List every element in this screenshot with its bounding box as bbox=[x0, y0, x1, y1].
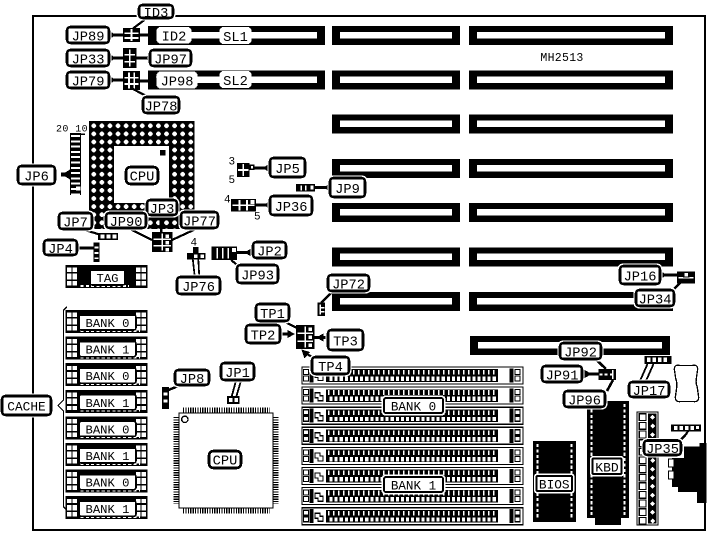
svg-text:JP7: JP7 bbox=[63, 216, 88, 231]
svg-text:TP1: TP1 bbox=[260, 308, 285, 323]
svg-text:CACHE: CACHE bbox=[7, 400, 46, 415]
svg-text:JP9: JP9 bbox=[335, 183, 360, 198]
svg-text:JP6: JP6 bbox=[24, 170, 49, 185]
svg-text:BANK 0: BANK 0 bbox=[86, 423, 130, 437]
svg-text:JP91: JP91 bbox=[546, 369, 579, 384]
svg-text:SL1: SL1 bbox=[223, 31, 248, 46]
svg-text:TP2: TP2 bbox=[251, 329, 276, 344]
svg-text:KBD: KBD bbox=[595, 460, 619, 475]
svg-text:JP17: JP17 bbox=[633, 385, 666, 400]
svg-text:CPU: CPU bbox=[213, 455, 238, 470]
svg-text:ID2: ID2 bbox=[162, 31, 187, 46]
svg-text:JP16: JP16 bbox=[624, 270, 657, 285]
svg-text:MH2513: MH2513 bbox=[540, 52, 583, 65]
svg-text:BIOS: BIOS bbox=[539, 478, 570, 493]
svg-text:4: 4 bbox=[224, 195, 231, 207]
svg-text:JP90: JP90 bbox=[110, 216, 143, 231]
svg-text:BANK 1: BANK 1 bbox=[86, 503, 130, 517]
svg-text:JP76: JP76 bbox=[182, 281, 215, 296]
svg-text:JP2: JP2 bbox=[257, 245, 282, 260]
svg-text:TP4: TP4 bbox=[318, 361, 343, 376]
svg-text:BANK 1: BANK 1 bbox=[86, 344, 130, 358]
svg-text:JP78: JP78 bbox=[145, 100, 178, 115]
svg-text:JP72: JP72 bbox=[332, 278, 365, 293]
svg-text:JP3: JP3 bbox=[150, 203, 175, 218]
svg-text:BANK 0: BANK 0 bbox=[86, 370, 130, 384]
svg-text:JP1: JP1 bbox=[225, 367, 250, 382]
svg-text:ID3: ID3 bbox=[144, 7, 169, 22]
svg-text:SL2: SL2 bbox=[223, 75, 248, 90]
svg-text:JP34: JP34 bbox=[639, 293, 672, 308]
svg-text:5: 5 bbox=[229, 175, 236, 187]
svg-text:JP98: JP98 bbox=[161, 75, 194, 90]
svg-text:JP5: JP5 bbox=[275, 163, 300, 178]
svg-text:JP36: JP36 bbox=[275, 201, 308, 216]
svg-text:JP97: JP97 bbox=[154, 53, 187, 68]
svg-text:BANK 0: BANK 0 bbox=[391, 401, 436, 415]
svg-text:JP33: JP33 bbox=[72, 53, 105, 68]
svg-text:CPU: CPU bbox=[130, 171, 155, 186]
svg-text:JP96: JP96 bbox=[568, 394, 601, 409]
svg-text:JP77: JP77 bbox=[183, 215, 216, 230]
svg-text:JP35: JP35 bbox=[646, 443, 679, 458]
svg-text:BANK 0: BANK 0 bbox=[86, 477, 130, 491]
svg-text:TP3: TP3 bbox=[333, 335, 358, 350]
svg-text:4: 4 bbox=[191, 238, 198, 250]
svg-text:JP92: JP92 bbox=[564, 346, 597, 361]
svg-text:JP89: JP89 bbox=[72, 30, 105, 45]
svg-text:JP79: JP79 bbox=[72, 75, 105, 90]
svg-text:BANK 1: BANK 1 bbox=[86, 450, 130, 464]
svg-text:BANK 0: BANK 0 bbox=[86, 317, 130, 331]
svg-text:TAG: TAG bbox=[97, 272, 119, 286]
svg-text:JP4: JP4 bbox=[48, 243, 73, 258]
svg-text:JP8: JP8 bbox=[180, 373, 205, 388]
svg-text:5: 5 bbox=[254, 212, 261, 224]
svg-text:BANK 1: BANK 1 bbox=[391, 480, 436, 494]
svg-text:BANK 1: BANK 1 bbox=[86, 397, 130, 411]
svg-text:3: 3 bbox=[229, 157, 236, 169]
svg-text:JP93: JP93 bbox=[241, 269, 274, 284]
